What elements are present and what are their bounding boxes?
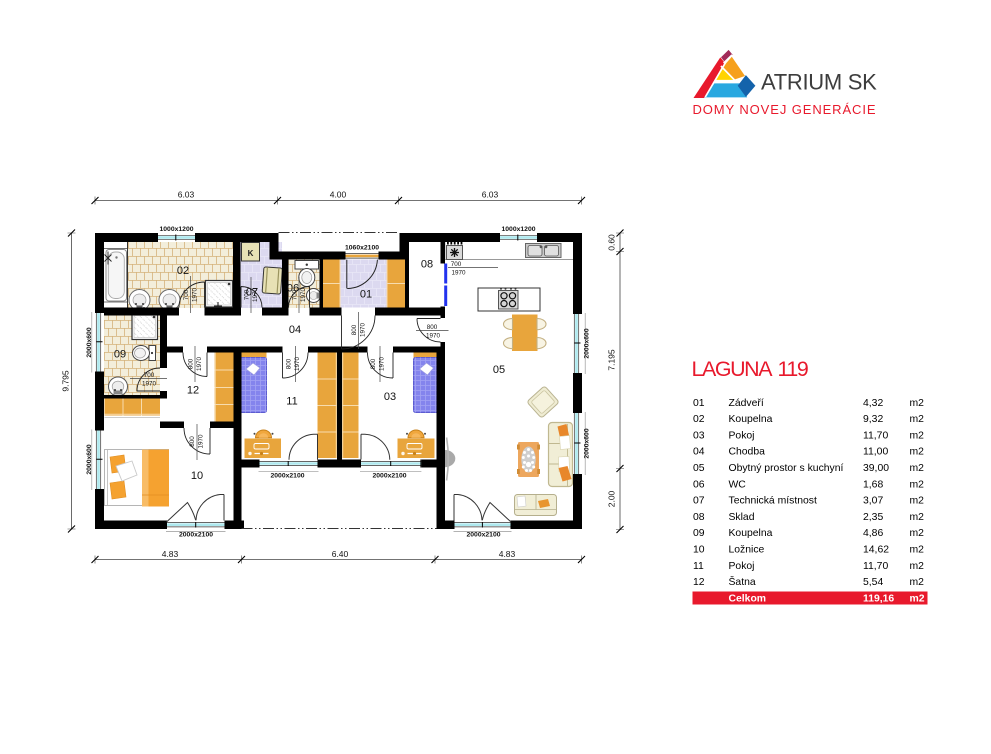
svg-text:LAGUNA: LAGUNA bbox=[692, 357, 774, 381]
svg-text:Pokoj: Pokoj bbox=[729, 561, 755, 572]
svg-text:0.60: 0.60 bbox=[607, 234, 617, 251]
svg-text:m2: m2 bbox=[910, 594, 925, 605]
svg-text:2,35: 2,35 bbox=[863, 512, 883, 523]
svg-text:m2: m2 bbox=[910, 398, 925, 409]
svg-text:m2: m2 bbox=[910, 528, 925, 539]
svg-text:07: 07 bbox=[246, 287, 258, 299]
svg-text:700: 700 bbox=[144, 372, 155, 379]
svg-text:2000x600: 2000x600 bbox=[584, 428, 591, 458]
svg-text:2000x600: 2000x600 bbox=[86, 444, 93, 474]
svg-text:1970: 1970 bbox=[451, 270, 466, 277]
svg-text:K: K bbox=[248, 249, 254, 258]
svg-text:2000x2100: 2000x2100 bbox=[372, 473, 406, 480]
svg-text:4,86: 4,86 bbox=[863, 528, 883, 539]
svg-text:800: 800 bbox=[427, 324, 438, 331]
svg-text:2000x2100: 2000x2100 bbox=[466, 532, 500, 539]
svg-text:10: 10 bbox=[693, 545, 705, 556]
svg-text:Šatna: Šatna bbox=[729, 575, 756, 588]
svg-text:700: 700 bbox=[183, 289, 190, 300]
svg-text:1970: 1970 bbox=[360, 323, 367, 338]
svg-text:Obytný prostor s kuchyní: Obytný prostor s kuchyní bbox=[729, 463, 844, 474]
svg-text:4,32: 4,32 bbox=[863, 398, 883, 409]
svg-text:m2: m2 bbox=[910, 479, 925, 490]
svg-text:Technická místnost: Technická místnost bbox=[729, 496, 817, 507]
svg-text:Sklad: Sklad bbox=[729, 512, 755, 523]
svg-text:m2: m2 bbox=[910, 463, 925, 474]
svg-text:119: 119 bbox=[778, 357, 808, 381]
svg-text:800: 800 bbox=[370, 358, 377, 369]
svg-text:06: 06 bbox=[693, 479, 705, 490]
svg-text:Chodba: Chodba bbox=[729, 447, 766, 458]
svg-text:11: 11 bbox=[693, 561, 704, 572]
svg-text:4.83: 4.83 bbox=[499, 549, 516, 559]
svg-text:05: 05 bbox=[693, 463, 705, 474]
svg-text:119,16: 119,16 bbox=[863, 594, 894, 605]
svg-text:10: 10 bbox=[191, 470, 203, 482]
svg-text:1970: 1970 bbox=[379, 357, 386, 372]
svg-text:1000x1200: 1000x1200 bbox=[159, 226, 193, 233]
svg-text:m2: m2 bbox=[910, 414, 925, 425]
svg-text:09: 09 bbox=[693, 528, 705, 539]
svg-text:04: 04 bbox=[693, 447, 705, 458]
svg-text:Koupelna: Koupelna bbox=[729, 528, 773, 539]
svg-text:2000x600: 2000x600 bbox=[86, 327, 93, 357]
svg-text:04: 04 bbox=[289, 324, 301, 336]
svg-text:Celkom: Celkom bbox=[729, 594, 767, 605]
svg-text:m2: m2 bbox=[910, 496, 925, 507]
svg-text:05: 05 bbox=[493, 364, 505, 376]
svg-text:DOMY NOVEJ GENERÁCIE: DOMY NOVEJ GENERÁCIE bbox=[693, 102, 877, 117]
svg-text:01: 01 bbox=[360, 289, 372, 301]
svg-text:800: 800 bbox=[286, 358, 293, 369]
svg-text:5,54: 5,54 bbox=[863, 577, 883, 588]
svg-text:700: 700 bbox=[451, 261, 462, 268]
svg-text:11,70: 11,70 bbox=[863, 561, 888, 572]
svg-text:06: 06 bbox=[287, 283, 299, 295]
svg-text:6.03: 6.03 bbox=[178, 190, 195, 200]
svg-text:6.40: 6.40 bbox=[332, 549, 349, 559]
svg-text:7.195: 7.195 bbox=[607, 349, 617, 371]
svg-text:1970: 1970 bbox=[294, 357, 301, 372]
svg-text:1970: 1970 bbox=[192, 288, 199, 303]
svg-text:12: 12 bbox=[187, 385, 199, 397]
svg-text:9.795: 9.795 bbox=[61, 370, 71, 392]
svg-text:07: 07 bbox=[693, 496, 705, 507]
svg-text:08: 08 bbox=[693, 512, 705, 523]
svg-text:11,70: 11,70 bbox=[863, 430, 888, 441]
svg-text:1970: 1970 bbox=[142, 381, 157, 388]
svg-text:800: 800 bbox=[351, 324, 358, 335]
svg-text:m2: m2 bbox=[910, 577, 925, 588]
svg-text:02: 02 bbox=[177, 265, 189, 277]
svg-text:1,68: 1,68 bbox=[863, 479, 883, 490]
svg-text:Zádveří: Zádveří bbox=[729, 398, 764, 409]
svg-text:800: 800 bbox=[188, 358, 195, 369]
svg-text:2000x600: 2000x600 bbox=[584, 328, 591, 358]
svg-text:m2: m2 bbox=[910, 447, 925, 458]
svg-text:11,00: 11,00 bbox=[863, 447, 888, 458]
svg-text:800: 800 bbox=[189, 436, 196, 447]
svg-text:1970: 1970 bbox=[196, 357, 203, 372]
svg-text:m2: m2 bbox=[910, 545, 925, 556]
svg-text:03: 03 bbox=[384, 391, 396, 403]
svg-text:m2: m2 bbox=[910, 512, 925, 523]
svg-text:2.00: 2.00 bbox=[607, 490, 617, 507]
svg-text:03: 03 bbox=[693, 430, 705, 441]
svg-text:08: 08 bbox=[421, 259, 433, 271]
svg-text:9,32: 9,32 bbox=[863, 414, 883, 425]
svg-text:m2: m2 bbox=[910, 430, 925, 441]
svg-text:1970: 1970 bbox=[198, 434, 205, 449]
svg-text:39,00: 39,00 bbox=[863, 463, 889, 474]
svg-text:02: 02 bbox=[693, 414, 705, 425]
svg-text:6.03: 6.03 bbox=[482, 190, 499, 200]
svg-text:1970: 1970 bbox=[426, 333, 441, 340]
svg-text:09: 09 bbox=[114, 349, 126, 361]
svg-text:2000x2100: 2000x2100 bbox=[179, 532, 213, 539]
svg-text:m2: m2 bbox=[910, 561, 925, 572]
svg-text:2000x2100: 2000x2100 bbox=[270, 473, 304, 480]
svg-text:1000x1200: 1000x1200 bbox=[501, 226, 535, 233]
svg-text:12: 12 bbox=[693, 577, 705, 588]
svg-text:4.00: 4.00 bbox=[330, 190, 347, 200]
svg-text:4.83: 4.83 bbox=[162, 549, 179, 559]
svg-text:WC: WC bbox=[729, 479, 747, 490]
svg-text:1970: 1970 bbox=[300, 288, 307, 303]
svg-text:11: 11 bbox=[286, 396, 297, 408]
svg-text:3,07: 3,07 bbox=[863, 496, 883, 507]
svg-text:Ložnice: Ložnice bbox=[729, 545, 765, 556]
svg-text:Pokoj: Pokoj bbox=[729, 430, 755, 441]
svg-text:14,62: 14,62 bbox=[863, 545, 889, 556]
svg-text:Koupelna: Koupelna bbox=[729, 414, 773, 425]
svg-text:01: 01 bbox=[693, 398, 705, 409]
svg-text:ATRIUM SK: ATRIUM SK bbox=[761, 70, 877, 95]
svg-text:1060x2100: 1060x2100 bbox=[345, 245, 379, 252]
